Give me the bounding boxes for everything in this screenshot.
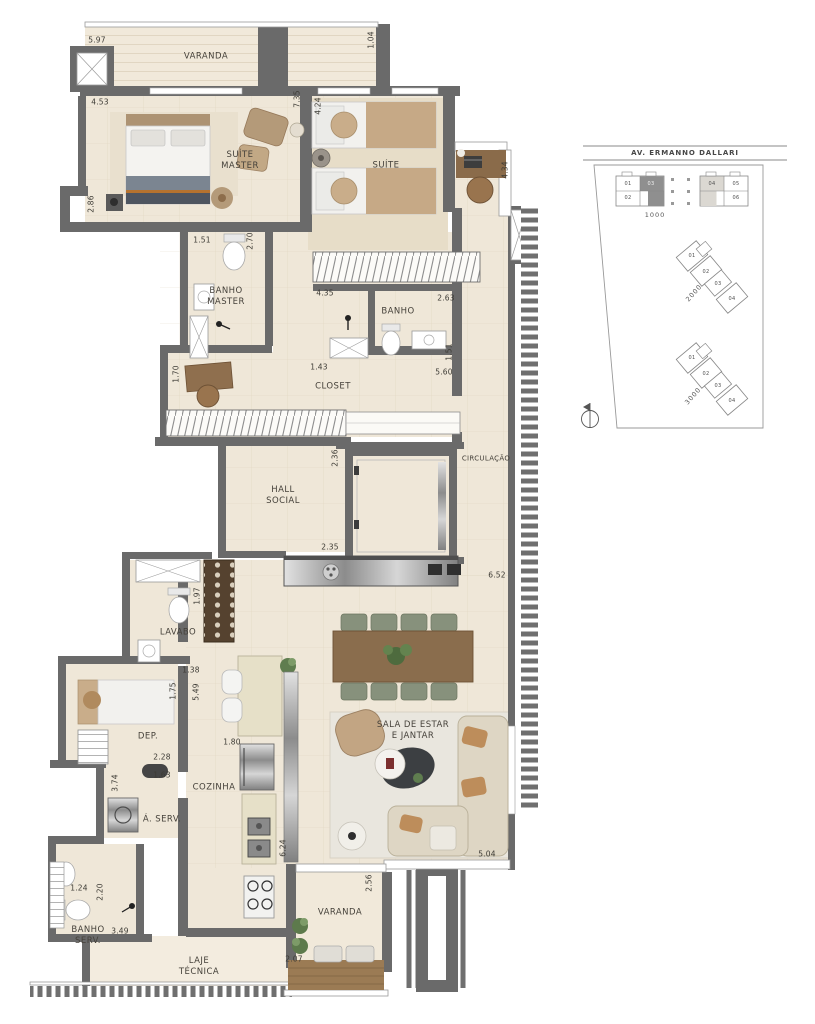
floor-plan-drawing — [0, 0, 815, 1024]
compass-icon — [582, 403, 599, 428]
site-plan — [582, 146, 788, 428]
elevator — [345, 448, 457, 564]
kitchen-counter-band — [284, 556, 461, 586]
dining-set — [333, 614, 473, 700]
floor-plan-page: VARANDA SUÍTE MASTER SUÍTE BANHO MASTER … — [0, 0, 815, 1024]
